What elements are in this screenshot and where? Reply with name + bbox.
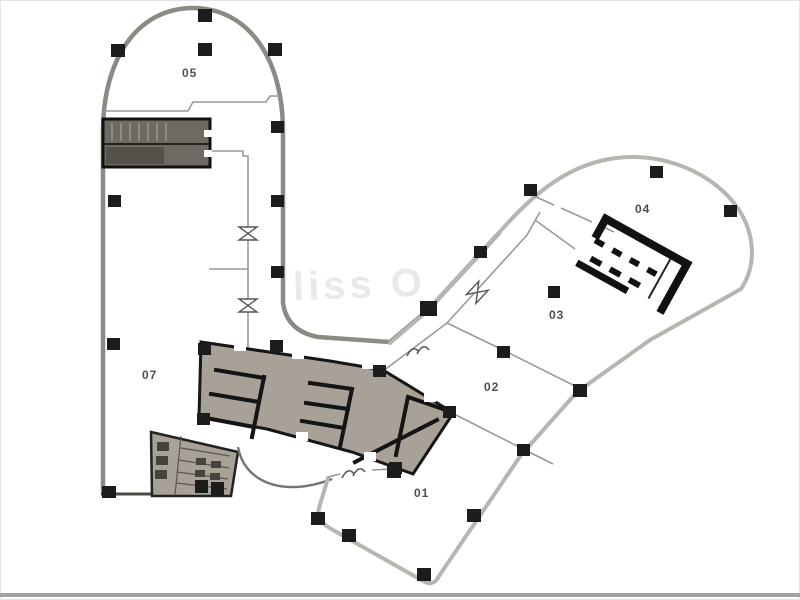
column-marker [474, 246, 487, 258]
room-03-upper-wall [535, 220, 575, 249]
column-marker [198, 343, 211, 355]
wall-break-hook-icon [342, 469, 365, 478]
wall-02-03 [447, 323, 577, 387]
column-marker [195, 480, 208, 493]
column-marker [271, 195, 284, 207]
stair-east-bottom-wall [575, 260, 629, 294]
stair-block-east [575, 213, 692, 314]
column-marker [467, 509, 481, 522]
column-marker [102, 486, 116, 498]
door-swing-arc [238, 447, 332, 487]
room-label-07: 07 [142, 368, 157, 382]
toilet-room [151, 432, 238, 496]
column-marker [271, 266, 284, 278]
column-marker [387, 466, 401, 478]
room-label-03: 03 [549, 308, 564, 322]
stair-block-west [103, 119, 212, 167]
room-label-05: 05 [182, 66, 197, 80]
wall-break-icon [466, 281, 488, 303]
column-marker [270, 340, 283, 352]
room-label-02: 02 [484, 380, 499, 394]
column-marker [517, 444, 530, 456]
column-marker [373, 365, 386, 377]
bottom-border-bar [0, 593, 800, 597]
column-marker [524, 184, 537, 196]
stair-east-right-wall [656, 258, 692, 314]
column-marker [573, 384, 587, 397]
column-marker [342, 529, 356, 542]
floor-plan-canvas: liss O [0, 0, 800, 600]
column-marker [268, 43, 282, 56]
room-label-01: 01 [414, 486, 429, 500]
room-label-04: 04 [635, 202, 650, 216]
image-frame [1, 1, 800, 600]
stair-lower-flight [106, 147, 164, 164]
column-marker [108, 195, 121, 207]
column-marker [271, 121, 284, 133]
column-marker [211, 482, 224, 495]
stair-east-top-wall [600, 213, 691, 268]
stair-east-left-wall [592, 213, 612, 240]
core-link-wall [383, 323, 447, 371]
wall-break-icon [239, 299, 257, 312]
room-05-boundary-wall [104, 96, 281, 111]
column-marker [650, 166, 663, 178]
column-marker [311, 512, 325, 525]
column-marker [548, 286, 560, 298]
column-marker [443, 406, 456, 418]
column-marker [198, 43, 212, 56]
corridor-wall [211, 151, 248, 349]
column-marker [198, 9, 212, 22]
wall-break-icon [239, 227, 257, 240]
wall-break-hook-icon [407, 347, 429, 356]
column-marker [420, 301, 437, 316]
column-marker [497, 346, 510, 358]
floor-plan-svg: 05 07 04 03 02 01 [0, 0, 800, 600]
column-marker [107, 338, 120, 350]
right-corridor-wall [447, 212, 540, 323]
column-marker [111, 44, 125, 57]
column-marker [197, 413, 210, 425]
column-marker [417, 568, 431, 581]
column-marker [724, 205, 737, 217]
